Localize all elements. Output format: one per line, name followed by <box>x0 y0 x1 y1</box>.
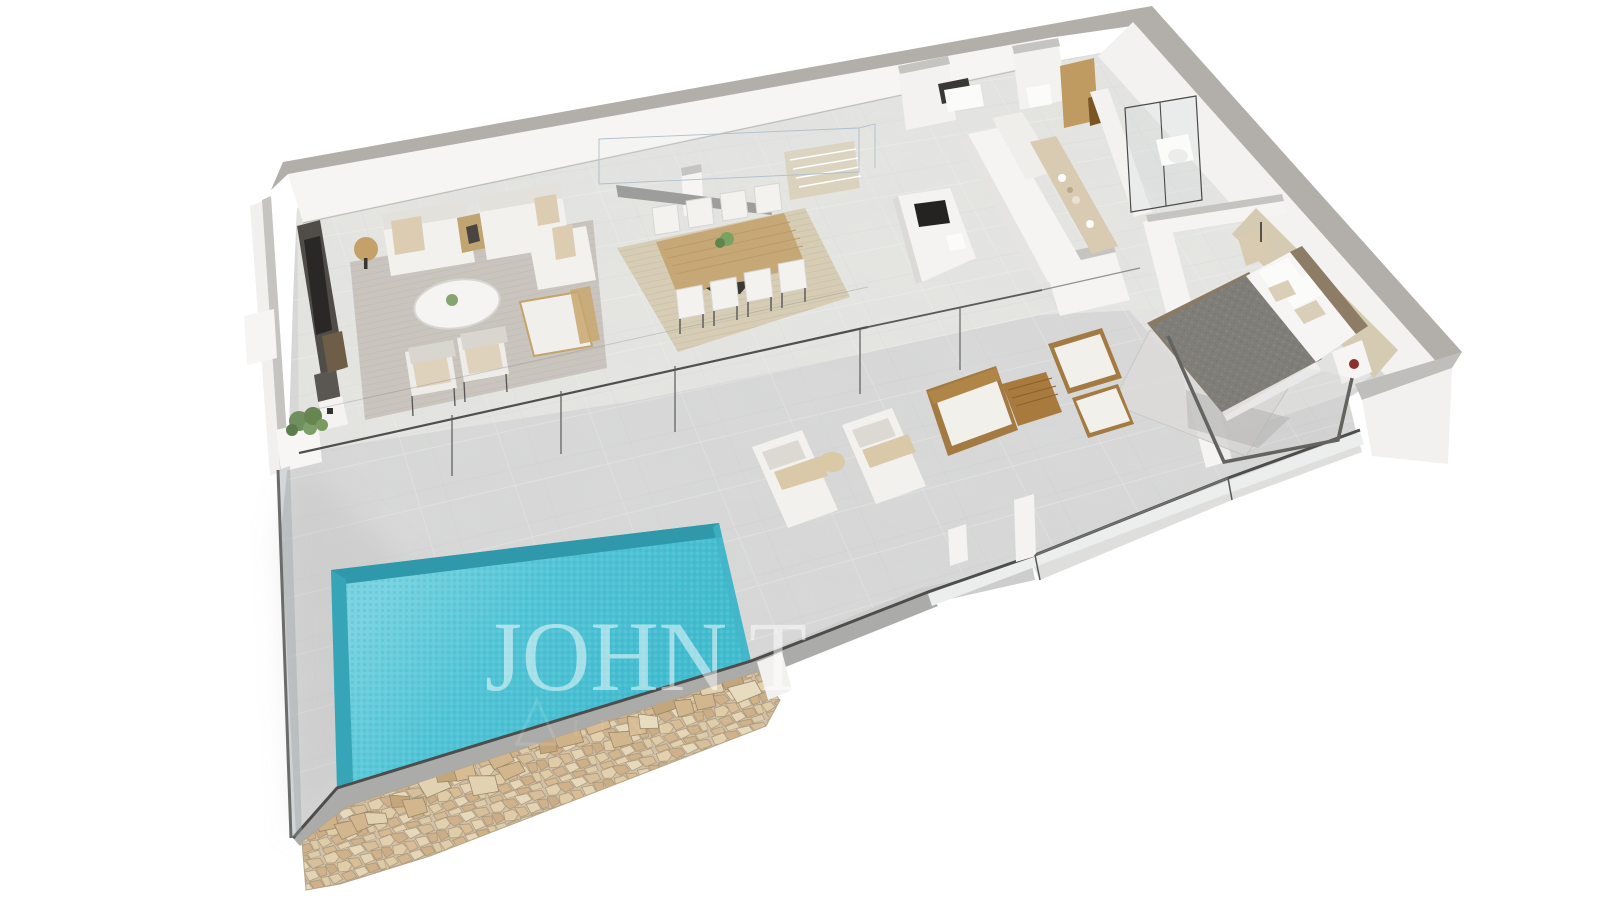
svg-text:LUXURY REAL ESTATE: LUXURY REAL ESTATE <box>572 716 1044 742</box>
svg-text:JOHN T: JOHN T <box>485 601 807 712</box>
